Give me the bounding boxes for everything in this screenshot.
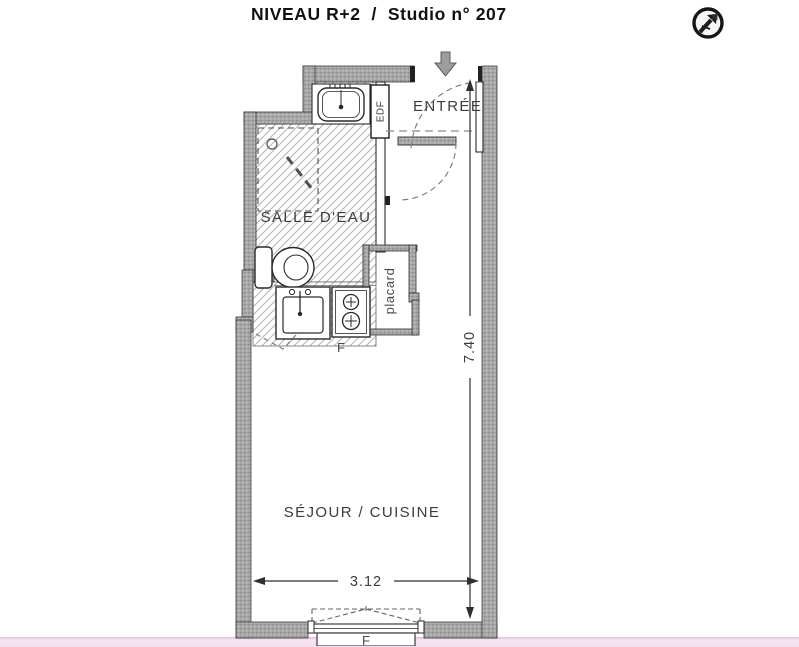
floor-plan: EDF placard: [0, 0, 799, 646]
dimension-vertical: 7.40: [462, 79, 478, 619]
wall-bottom-left: [236, 622, 308, 638]
bathroom-label: SALLE D'EAU: [261, 209, 372, 226]
wall-left-mid: [242, 270, 253, 322]
closet-label: placard: [382, 268, 397, 315]
wall-left-lower: [236, 320, 251, 638]
toilet: [255, 247, 314, 288]
wall-left-upper: [244, 112, 256, 282]
door-posts: [384, 66, 482, 205]
fridge-label: F: [337, 340, 345, 355]
dimension-horizontal: 3.12: [253, 574, 479, 590]
wall-top: [303, 66, 414, 82]
living-kitchen-label: SÉJOUR / CUISINE: [284, 504, 441, 521]
north-label: N: [712, 12, 718, 22]
dimension-vertical-label: 7.40: [462, 331, 478, 363]
kitchen-sink: [276, 287, 330, 339]
north-arrow-icon: N: [694, 9, 722, 37]
entrance-label: ENTRÉE: [413, 98, 482, 115]
edf-panel-label: EDF: [376, 101, 387, 123]
bathroom-door: [386, 131, 481, 200]
edf-panel: EDF: [371, 85, 389, 138]
dimension-horizontal-label: 3.12: [350, 574, 382, 590]
cooktop: [332, 287, 370, 337]
window-label: F: [362, 633, 370, 646]
wall-right: [482, 66, 497, 638]
entry-arrow-icon: [435, 52, 456, 76]
bathroom-sink: [312, 84, 370, 124]
window: F: [308, 606, 424, 646]
